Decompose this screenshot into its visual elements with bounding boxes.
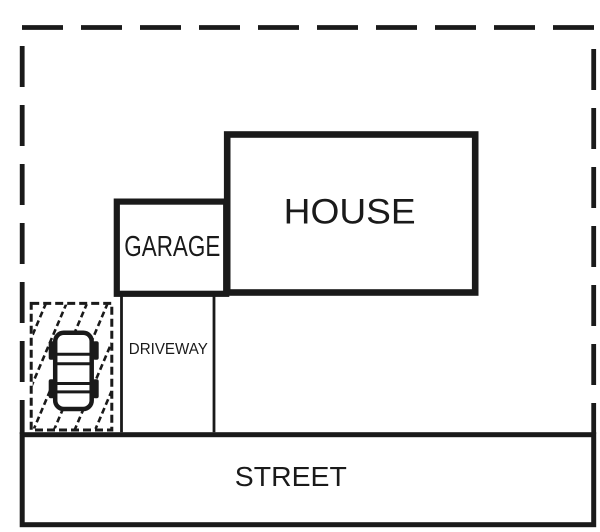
svg-text:HOUSE: HOUSE [284, 191, 416, 231]
svg-text:DRIVEWAY: DRIVEWAY [129, 341, 208, 358]
svg-text:STREET: STREET [235, 461, 347, 492]
svg-text:GARAGE: GARAGE [124, 231, 220, 263]
